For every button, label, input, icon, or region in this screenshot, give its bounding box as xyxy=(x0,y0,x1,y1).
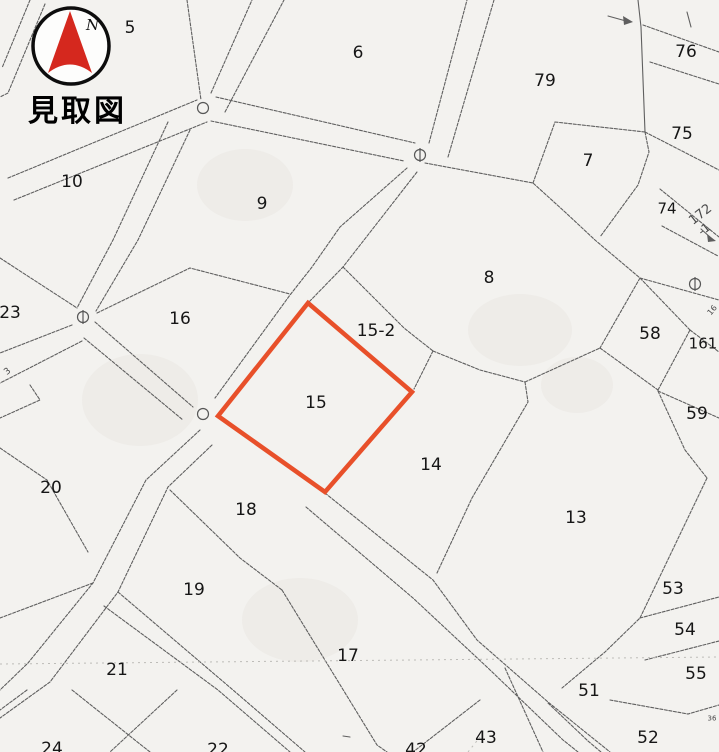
page-title: 見取図 xyxy=(28,94,127,129)
parcel-label-20: 20 xyxy=(40,478,62,498)
parcel-label-22: 22 xyxy=(207,740,229,752)
parcel-label-17: 17 xyxy=(337,646,359,666)
parcel-label-13: 13 xyxy=(565,508,587,528)
compass-north-label: N xyxy=(85,16,100,34)
parcel-label-3: 3 xyxy=(2,366,13,377)
scan-texture xyxy=(82,149,613,662)
parcel-label-9: 9 xyxy=(257,194,268,214)
pointer-arrow-icon xyxy=(623,16,633,25)
parcel-label-15: 15 xyxy=(305,393,327,413)
parcel-label-79: 79 xyxy=(534,71,556,91)
parcel-label-76: 76 xyxy=(675,42,697,62)
parcel-label-10: 10 xyxy=(61,172,83,192)
survey-marker-circle xyxy=(198,409,209,420)
parcel-label-54: 54 xyxy=(674,620,696,640)
parcel-label-161: 161 xyxy=(689,334,718,352)
parcel-label-14: 14 xyxy=(420,455,442,475)
parcel-label-16: 16 xyxy=(706,303,719,317)
parcel-label-6: 6 xyxy=(353,43,364,63)
cadastral-map: 567976757741098231615-258161155914201813… xyxy=(0,0,719,752)
parcel-label-43: 43 xyxy=(475,728,497,748)
compass: N xyxy=(33,8,109,84)
parcel-label-19: 19 xyxy=(183,580,205,600)
parcel-label-7: 7 xyxy=(583,151,594,171)
parcel-label-8: 8 xyxy=(484,268,495,288)
parcel-label-52: 52 xyxy=(637,728,659,748)
parcel-label-18: 18 xyxy=(235,500,257,520)
parcel-label-75: 75 xyxy=(671,124,693,144)
survey-marker-circle xyxy=(198,103,209,114)
parcel-label-21: 21 xyxy=(106,660,128,680)
parcel-label-16: 16 xyxy=(169,309,191,329)
parcel-label-36: 36 xyxy=(708,714,717,722)
parcel-label-24: 24 xyxy=(41,739,63,752)
parcel-label-58: 58 xyxy=(639,324,661,344)
parcel-label-53: 53 xyxy=(662,579,684,599)
parcel-label-55: 55 xyxy=(685,664,707,684)
parcel-label-51: 51 xyxy=(578,681,600,701)
parcel-label-42: 42 xyxy=(405,740,427,752)
parcel-label-23: 23 xyxy=(0,303,21,323)
parcel-label-74: 74 xyxy=(657,199,676,217)
lot-172-1-arrow-icon xyxy=(707,234,716,242)
parcel-label-5: 5 xyxy=(125,18,136,38)
parcel-label-15-2: 15-2 xyxy=(357,321,396,341)
parcel-label-59: 59 xyxy=(686,404,708,424)
